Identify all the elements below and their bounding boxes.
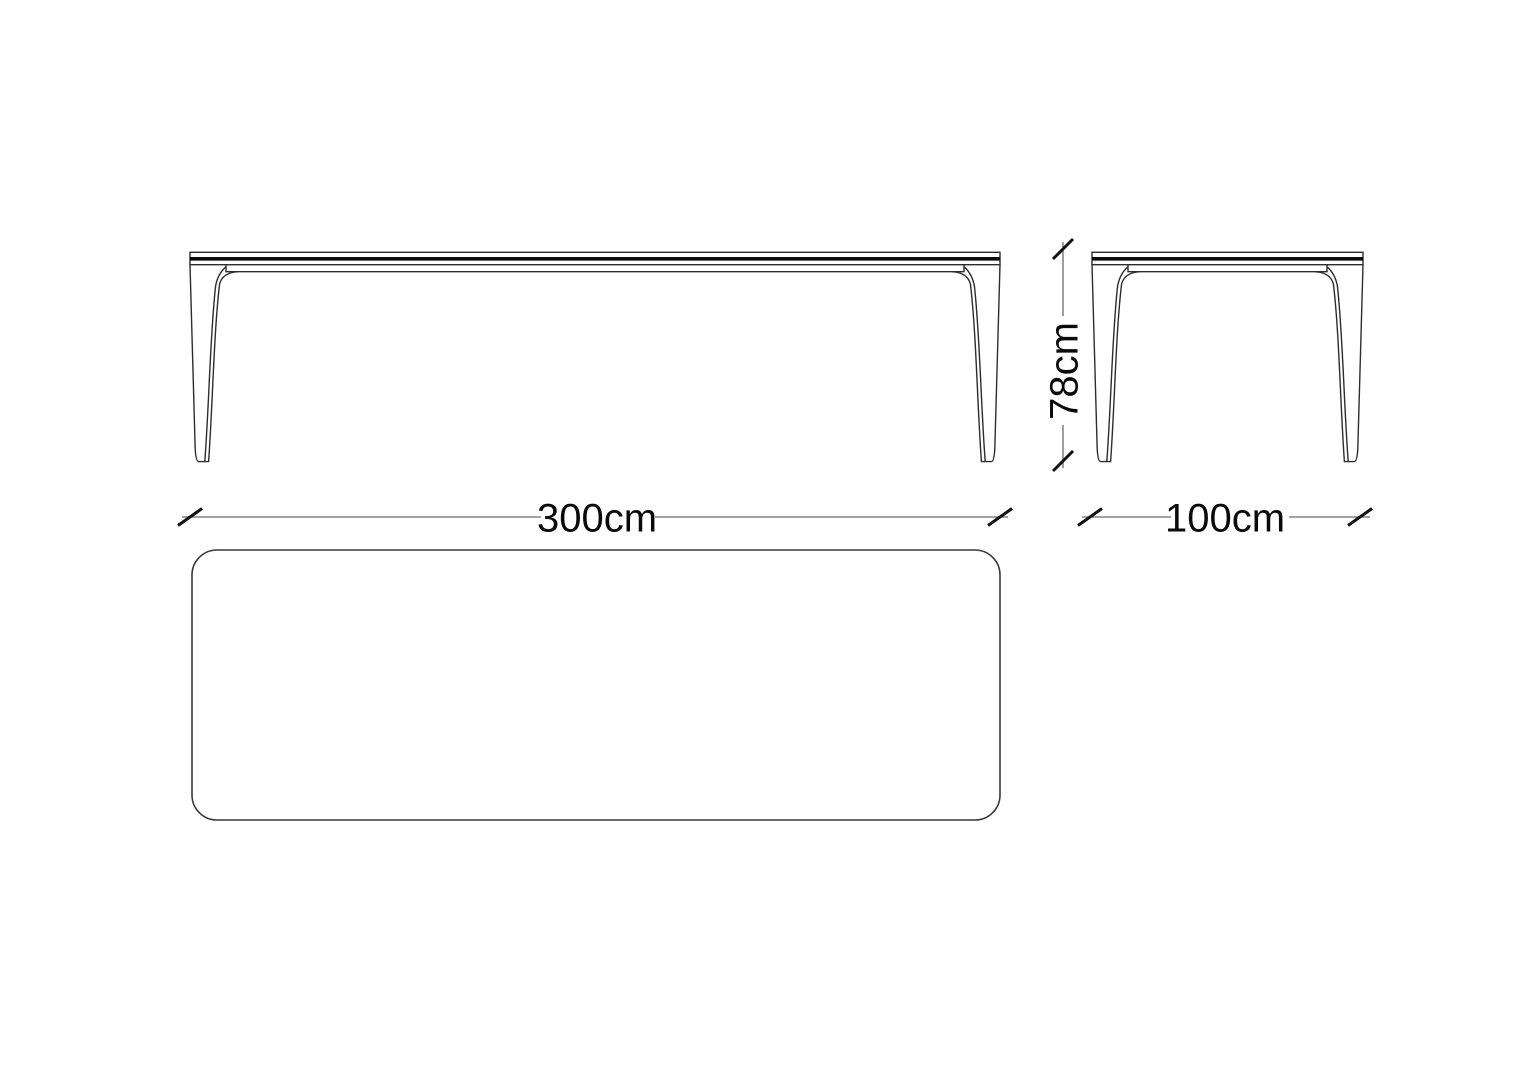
front-elevation-view bbox=[190, 252, 1000, 461]
table-technical-drawing: 300cm 100cm 78cm bbox=[0, 0, 1528, 1080]
drawing-canvas: 300cm 100cm 78cm bbox=[0, 0, 1528, 1080]
side-apron-line bbox=[1128, 265, 1327, 272]
front-left-leg bbox=[190, 265, 238, 462]
top-plan-view bbox=[192, 550, 1000, 820]
side-right-leg bbox=[1315, 265, 1363, 462]
depth-dimension: 100cm bbox=[1078, 497, 1372, 541]
tabletop-plan-outline bbox=[192, 550, 1000, 820]
front-right-leg bbox=[952, 265, 1000, 462]
width-dimension-label: 300cm bbox=[537, 497, 657, 541]
height-dimension: 78cm bbox=[1043, 239, 1087, 471]
width-dimension: 300cm bbox=[178, 497, 1012, 541]
side-left-leg bbox=[1092, 265, 1140, 462]
depth-dimension-label: 100cm bbox=[1165, 497, 1285, 541]
height-dimension-label: 78cm bbox=[1043, 322, 1087, 420]
front-apron-line bbox=[226, 265, 964, 272]
side-elevation-view bbox=[1092, 252, 1363, 461]
